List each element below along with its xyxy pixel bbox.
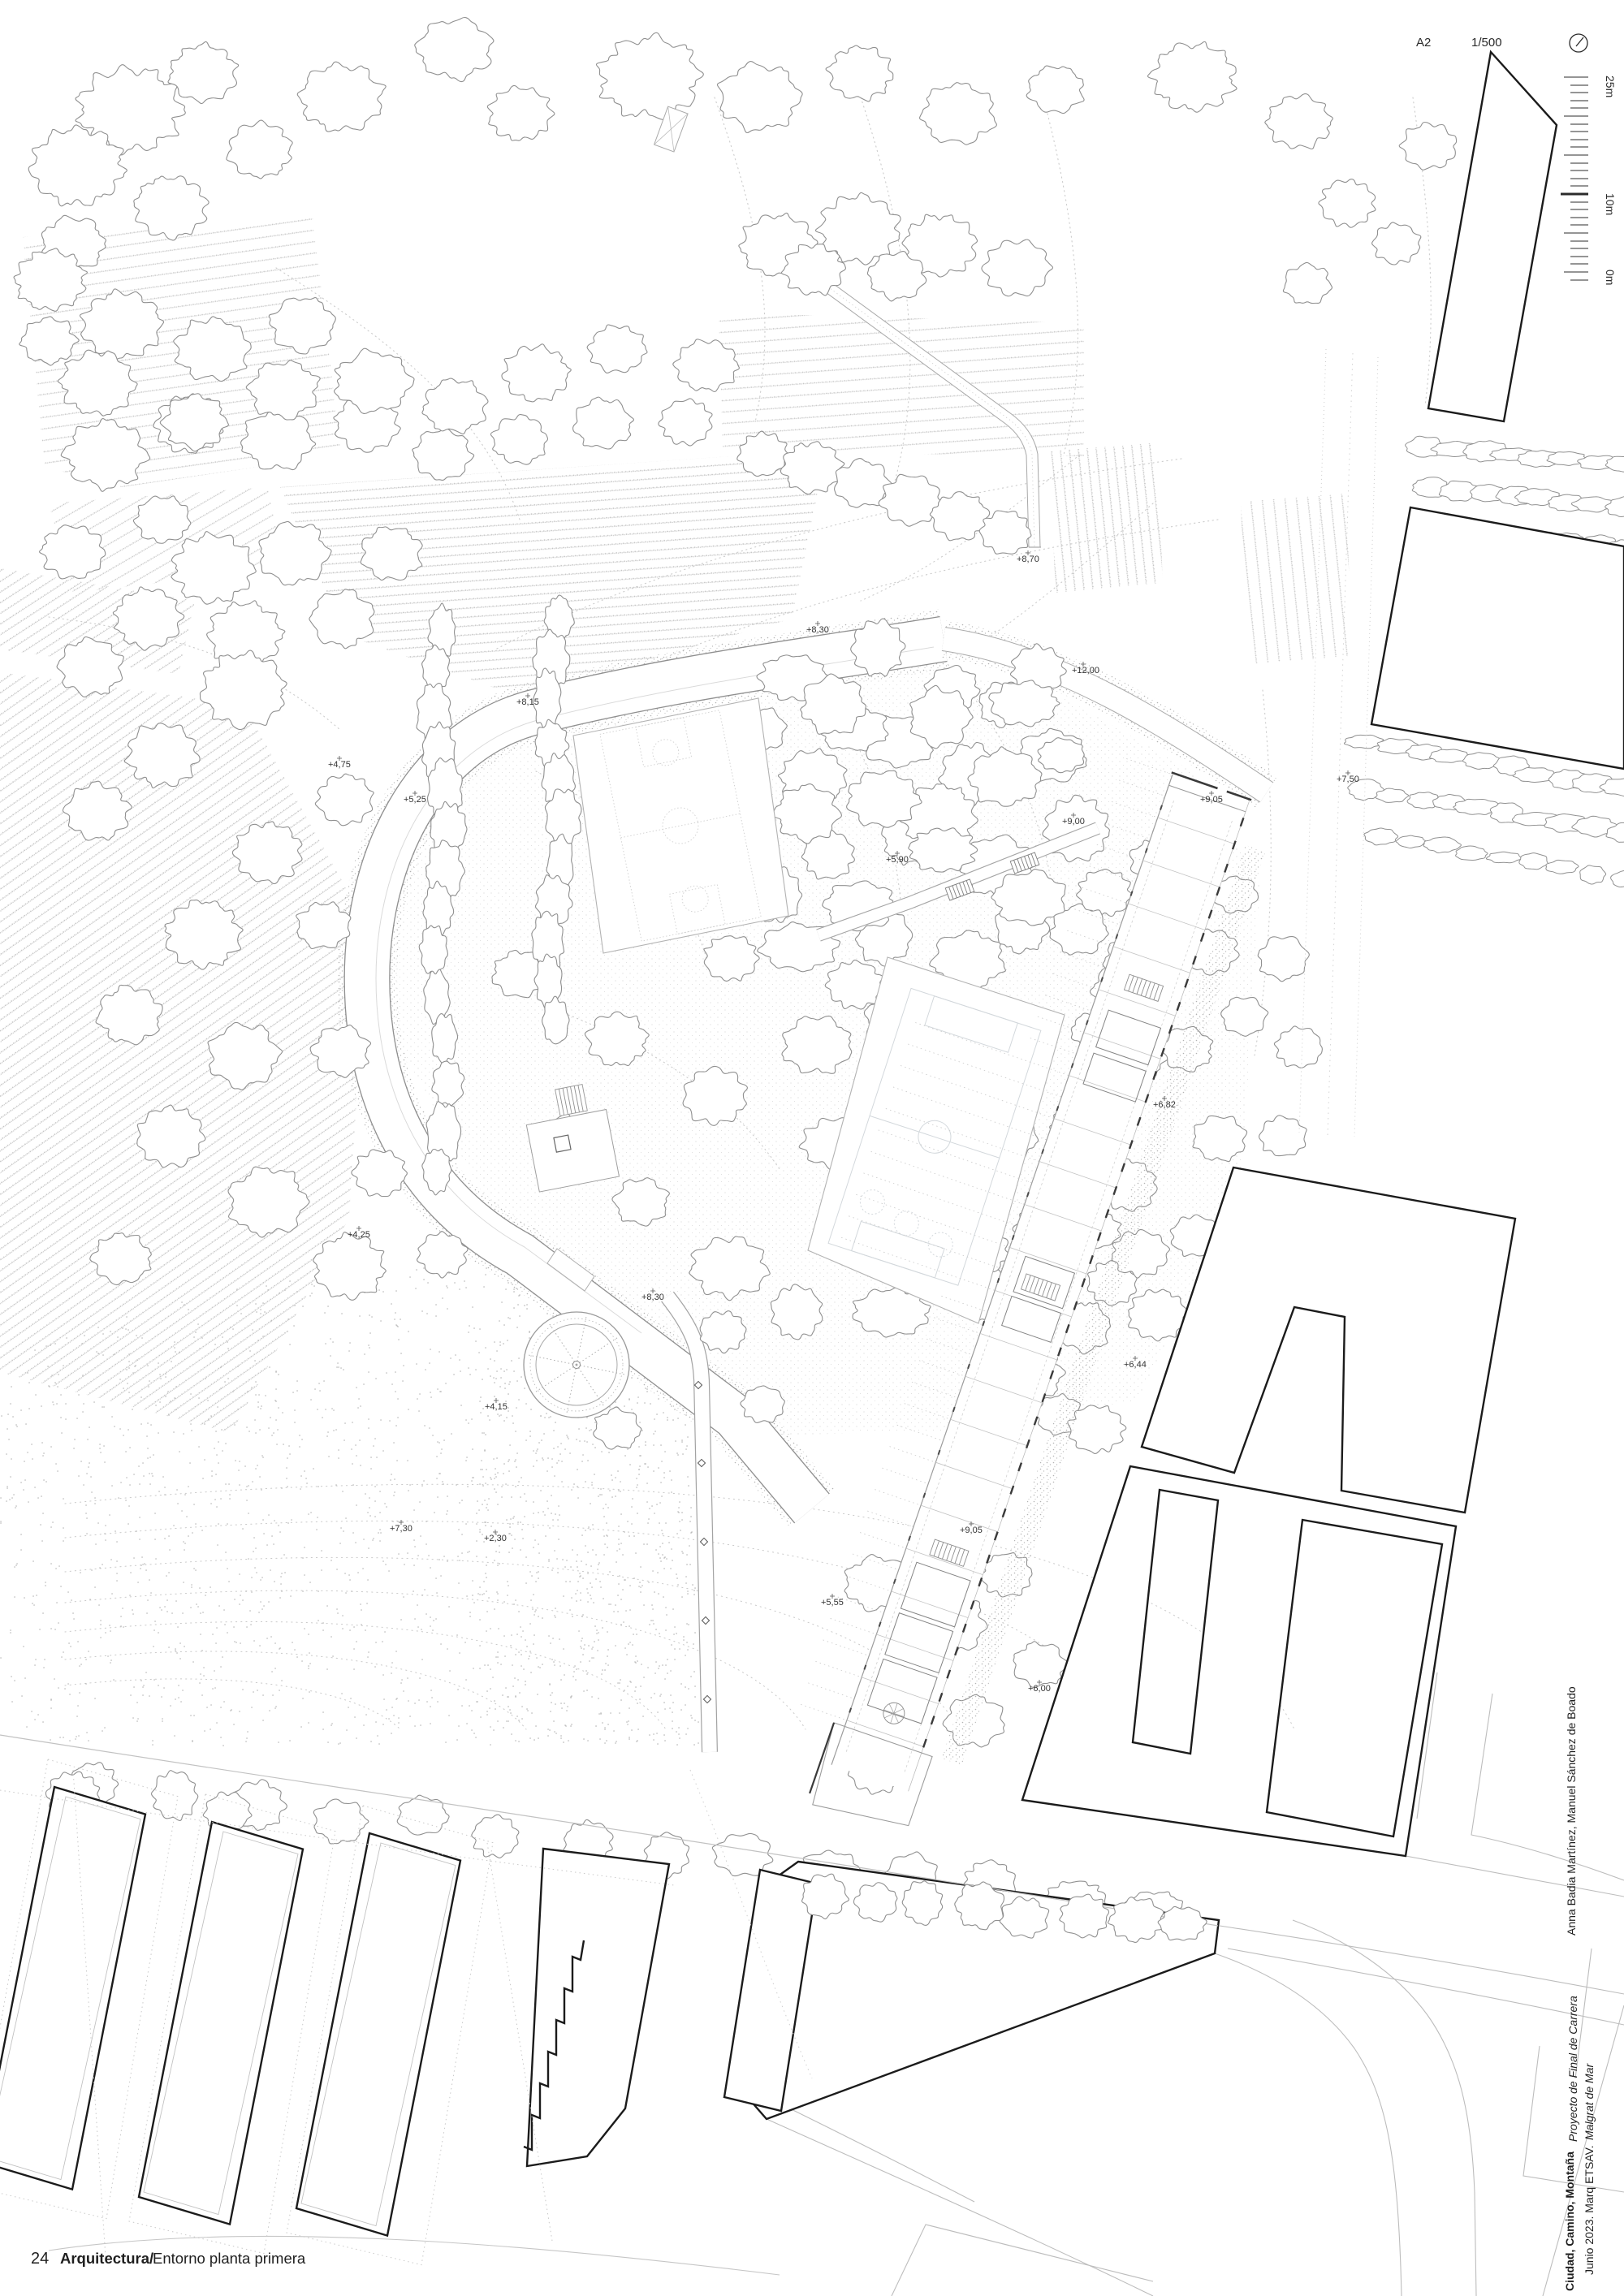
svg-text:+5,25: +5,25 (404, 795, 426, 805)
svg-text:Entorno planta primera: Entorno planta primera (153, 2250, 306, 2267)
svg-text:+6,44: +6,44 (1124, 1360, 1147, 1370)
svg-text:+4,75: +4,75 (328, 760, 351, 770)
svg-text:+4,15: +4,15 (485, 1402, 508, 1412)
svg-text:+4,25: +4,25 (348, 1230, 370, 1240)
svg-text:+6,82: +6,82 (1153, 1100, 1176, 1110)
svg-text:+8,70: +8,70 (1017, 555, 1039, 564)
svg-text:Malgrat de Mar: Malgrat de Mar (1583, 2063, 1596, 2140)
svg-text:+8,30: +8,30 (806, 625, 829, 635)
svg-text:A2: A2 (1416, 36, 1431, 50)
svg-text:0m: 0m (1604, 270, 1617, 285)
svg-text:+5,90: +5,90 (886, 855, 909, 865)
svg-text:1/500: 1/500 (1471, 36, 1502, 50)
svg-text:24: 24 (31, 2250, 49, 2268)
svg-text:10m: 10m (1604, 193, 1617, 215)
svg-text:+2,30: +2,30 (484, 1534, 507, 1543)
svg-text:+8,30: +8,30 (641, 1293, 664, 1302)
svg-text:+8,15: +8,15 (516, 697, 539, 707)
svg-text:+12,00: +12,00 (1072, 666, 1099, 675)
svg-text:+9,05: +9,05 (960, 1526, 983, 1535)
svg-text:25m: 25m (1604, 76, 1617, 97)
svg-text:Arquitectura/: Arquitectura/ (60, 2250, 153, 2267)
svg-text:Proyecto de Final de Carrera: Proyecto de Final de Carrera (1566, 1996, 1579, 2142)
svg-text:+9,00: +9,00 (1062, 817, 1085, 826)
svg-text:+7,30: +7,30 (390, 1524, 412, 1534)
svg-text:+7,50: +7,50 (1337, 775, 1359, 784)
svg-text:Anna Badia Martínez, Manuel Sá: Anna Badia Martínez, Manuel Sánchez de B… (1565, 1686, 1578, 1936)
svg-text:+5,55: +5,55 (821, 1598, 844, 1608)
svg-text:+6,00: +6,00 (1028, 1684, 1051, 1694)
svg-text:+9,05: +9,05 (1200, 795, 1223, 805)
svg-text:Ciudad, Camino, Montaña: Ciudad, Camino, Montaña (1563, 2151, 1576, 2291)
svg-text:Junio 2023. Marq ETSAV.: Junio 2023. Marq ETSAV. (1583, 2145, 1596, 2275)
